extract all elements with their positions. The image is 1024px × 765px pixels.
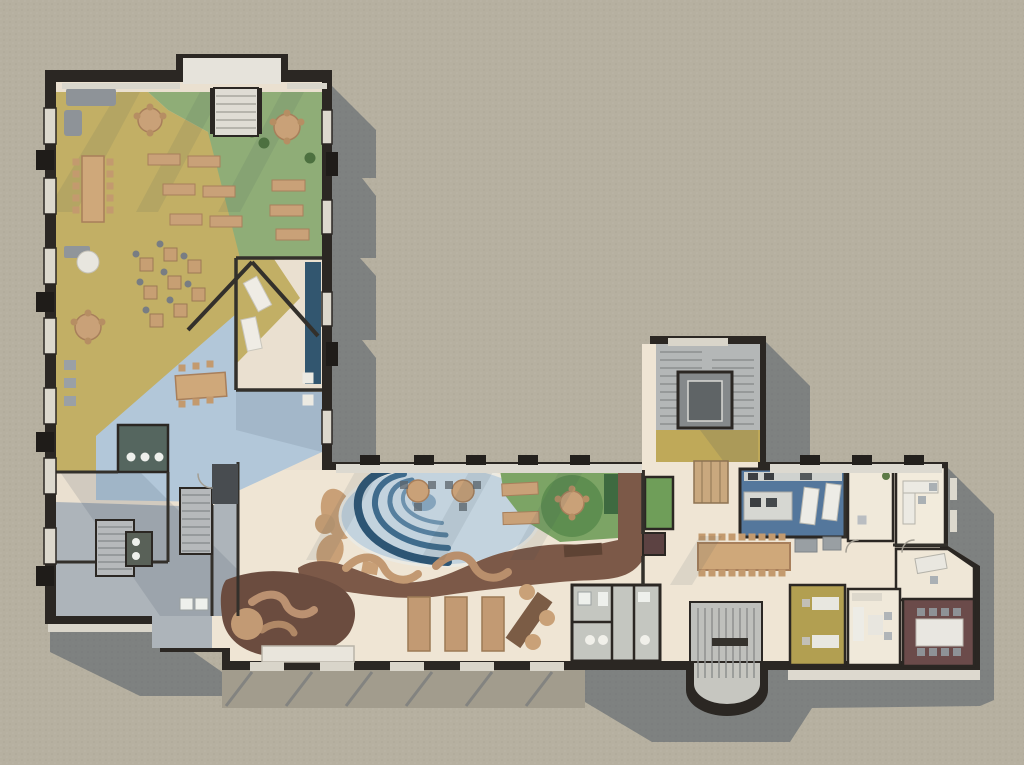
kitchen-counter-top (744, 472, 842, 481)
hall-bench-2 (445, 597, 467, 651)
corridor-bench-2 (823, 537, 841, 550)
stair-bump-floor (694, 661, 760, 704)
stairs-west-2 (180, 488, 212, 554)
maroon-sliver-room (643, 533, 665, 555)
round-table-1 (138, 108, 162, 132)
window-tower-top (668, 338, 728, 346)
white-round-table (77, 251, 99, 273)
sidewalk-left-sill (48, 624, 162, 632)
office-s-table (868, 615, 883, 635)
washer-center (578, 592, 591, 605)
windows-north-band-right (287, 83, 327, 89)
screenshot-root (0, 0, 1024, 765)
white-bench-bottom (262, 646, 354, 662)
elevator-cab (688, 381, 722, 421)
windows-north-band-left (62, 83, 180, 89)
floor-plan-rendering (0, 0, 1024, 765)
corridor-bench-1 (795, 539, 817, 552)
washer-1 (180, 598, 193, 610)
shadow-east-of-left-wing (332, 86, 376, 462)
office-mid-chair (858, 516, 867, 525)
window-boxes-wing2-top (800, 455, 924, 465)
kitchen-appliance-2 (764, 473, 774, 480)
refectory-table (82, 156, 104, 222)
office-mid-plant (882, 472, 890, 480)
sink-center-1 (598, 592, 608, 606)
office-s-sofa (853, 607, 864, 641)
office-angled-chair (930, 576, 938, 584)
olive-office-desk-2 (812, 635, 839, 648)
green-bench-1 (502, 482, 539, 496)
hall-bench-1 (408, 597, 430, 651)
dining-chairs-bottom (699, 570, 786, 577)
olive-office-desk-1 (812, 597, 839, 610)
blob-play-circle (231, 608, 263, 640)
blue-zone-table (175, 372, 227, 399)
kitchen-sink (766, 498, 777, 507)
kitchen-appliance-1 (748, 473, 758, 480)
benches-green (270, 180, 309, 240)
office-s-cabinet (852, 593, 882, 601)
dark-counter-service (212, 464, 238, 504)
bathroom-teal-left-wing (118, 425, 168, 472)
green-small-room (645, 477, 673, 529)
hall-bench-3 (482, 597, 504, 651)
round-table-2 (274, 114, 300, 140)
sofa-top-left-arm (64, 110, 82, 136)
shape-layer (0, 0, 1024, 765)
kitchen-stove (750, 498, 761, 507)
vestibule-interior (183, 58, 281, 84)
meeting-table (916, 619, 963, 646)
windows-hall-top-band (336, 464, 642, 473)
wall-stools (64, 360, 76, 406)
small-bath-service (126, 532, 152, 566)
washer-2 (195, 598, 208, 610)
toilets-teal-bath (127, 453, 164, 462)
office-ne-desk-2 (903, 493, 915, 524)
stairwell-south-rail (712, 638, 748, 646)
sink-center-2 (638, 592, 650, 602)
windows-wing2-top-band (770, 464, 942, 473)
planter-strip (604, 474, 618, 514)
pool-table-1 (407, 480, 429, 502)
sofa-top-left-long (66, 88, 116, 106)
round-table-3 (75, 314, 101, 340)
kitchen-appliance-3 (800, 473, 812, 480)
